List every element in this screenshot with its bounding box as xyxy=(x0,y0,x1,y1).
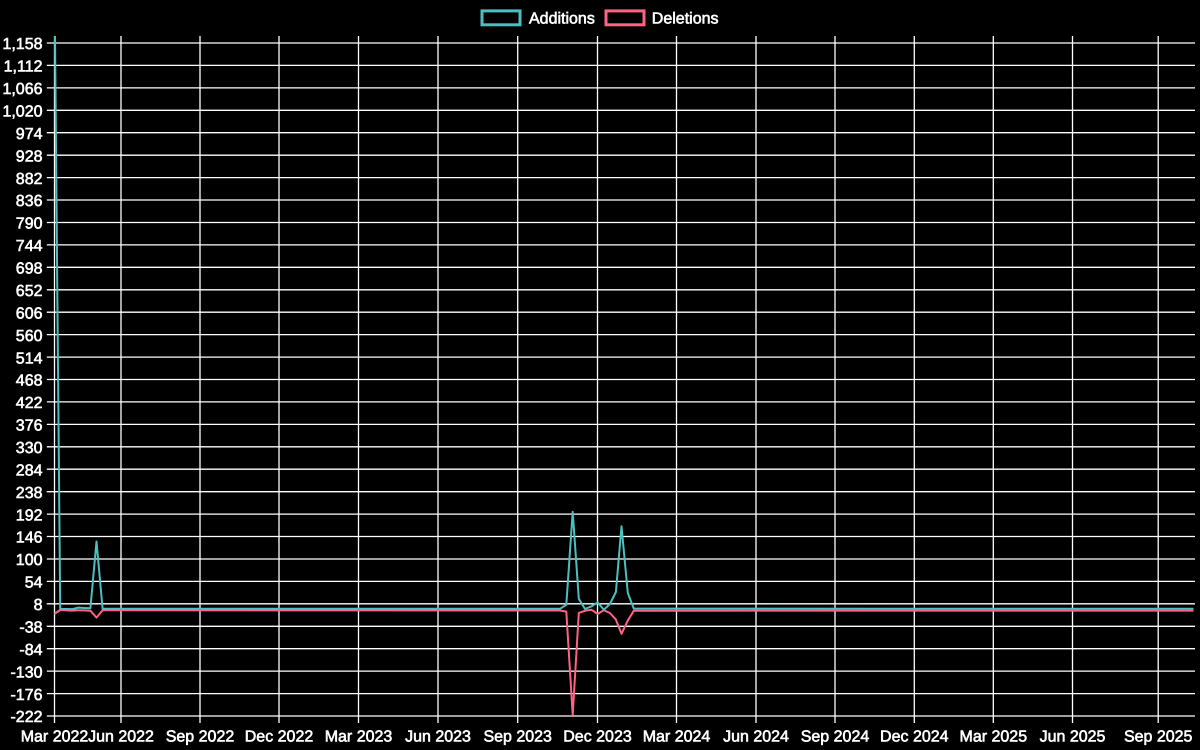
svg-text:836: 836 xyxy=(16,193,43,210)
svg-text:Mar 2024: Mar 2024 xyxy=(643,729,711,746)
svg-text:Deletions: Deletions xyxy=(652,11,719,28)
svg-text:Sep 2022: Sep 2022 xyxy=(166,729,235,746)
svg-text:560: 560 xyxy=(16,328,43,345)
svg-text:Dec 2024: Dec 2024 xyxy=(880,729,949,746)
svg-text:422: 422 xyxy=(16,395,43,412)
svg-text:Sep 2023: Sep 2023 xyxy=(483,729,552,746)
svg-text:-222: -222 xyxy=(10,709,42,726)
svg-text:330: 330 xyxy=(16,440,43,457)
svg-text:Mar 2023: Mar 2023 xyxy=(325,729,393,746)
svg-text:192: 192 xyxy=(16,507,43,524)
svg-text:882: 882 xyxy=(16,171,43,188)
svg-text:Mar 2025: Mar 2025 xyxy=(960,729,1028,746)
svg-text:284: 284 xyxy=(16,462,43,479)
svg-text:-176: -176 xyxy=(10,687,42,704)
svg-text:1,066: 1,066 xyxy=(2,81,42,98)
svg-text:Sep 2025: Sep 2025 xyxy=(1124,729,1193,746)
svg-text:1,112: 1,112 xyxy=(4,59,43,76)
svg-text:514: 514 xyxy=(16,350,43,367)
svg-text:Dec 2022: Dec 2022 xyxy=(245,729,314,746)
svg-text:698: 698 xyxy=(16,261,43,278)
svg-text:Jun 2024: Jun 2024 xyxy=(723,729,789,746)
svg-text:Additions: Additions xyxy=(529,11,595,28)
svg-text:1,158: 1,158 xyxy=(2,36,42,53)
svg-text:376: 376 xyxy=(16,418,43,435)
svg-text:Mar 2022: Mar 2022 xyxy=(21,729,89,746)
svg-text:744: 744 xyxy=(16,238,43,255)
svg-text:238: 238 xyxy=(16,485,43,502)
svg-text:Jun 2022: Jun 2022 xyxy=(88,729,154,746)
svg-text:790: 790 xyxy=(16,216,43,233)
svg-text:928: 928 xyxy=(16,148,43,165)
svg-text:-38: -38 xyxy=(19,620,42,637)
svg-text:974: 974 xyxy=(16,126,43,143)
svg-text:Sep 2024: Sep 2024 xyxy=(801,729,870,746)
svg-text:8: 8 xyxy=(34,597,43,614)
svg-text:Dec 2023: Dec 2023 xyxy=(563,729,632,746)
svg-text:54: 54 xyxy=(25,575,43,592)
svg-text:-130: -130 xyxy=(10,664,42,681)
svg-text:606: 606 xyxy=(16,305,43,322)
svg-text:1,020: 1,020 xyxy=(2,104,42,121)
svg-text:Jun 2023: Jun 2023 xyxy=(405,729,471,746)
svg-text:100: 100 xyxy=(16,552,43,569)
svg-text:146: 146 xyxy=(16,530,43,547)
svg-text:468: 468 xyxy=(16,373,43,390)
svg-text:652: 652 xyxy=(16,283,43,300)
svg-text:Jun 2025: Jun 2025 xyxy=(1040,729,1106,746)
svg-text:-84: -84 xyxy=(19,642,42,659)
